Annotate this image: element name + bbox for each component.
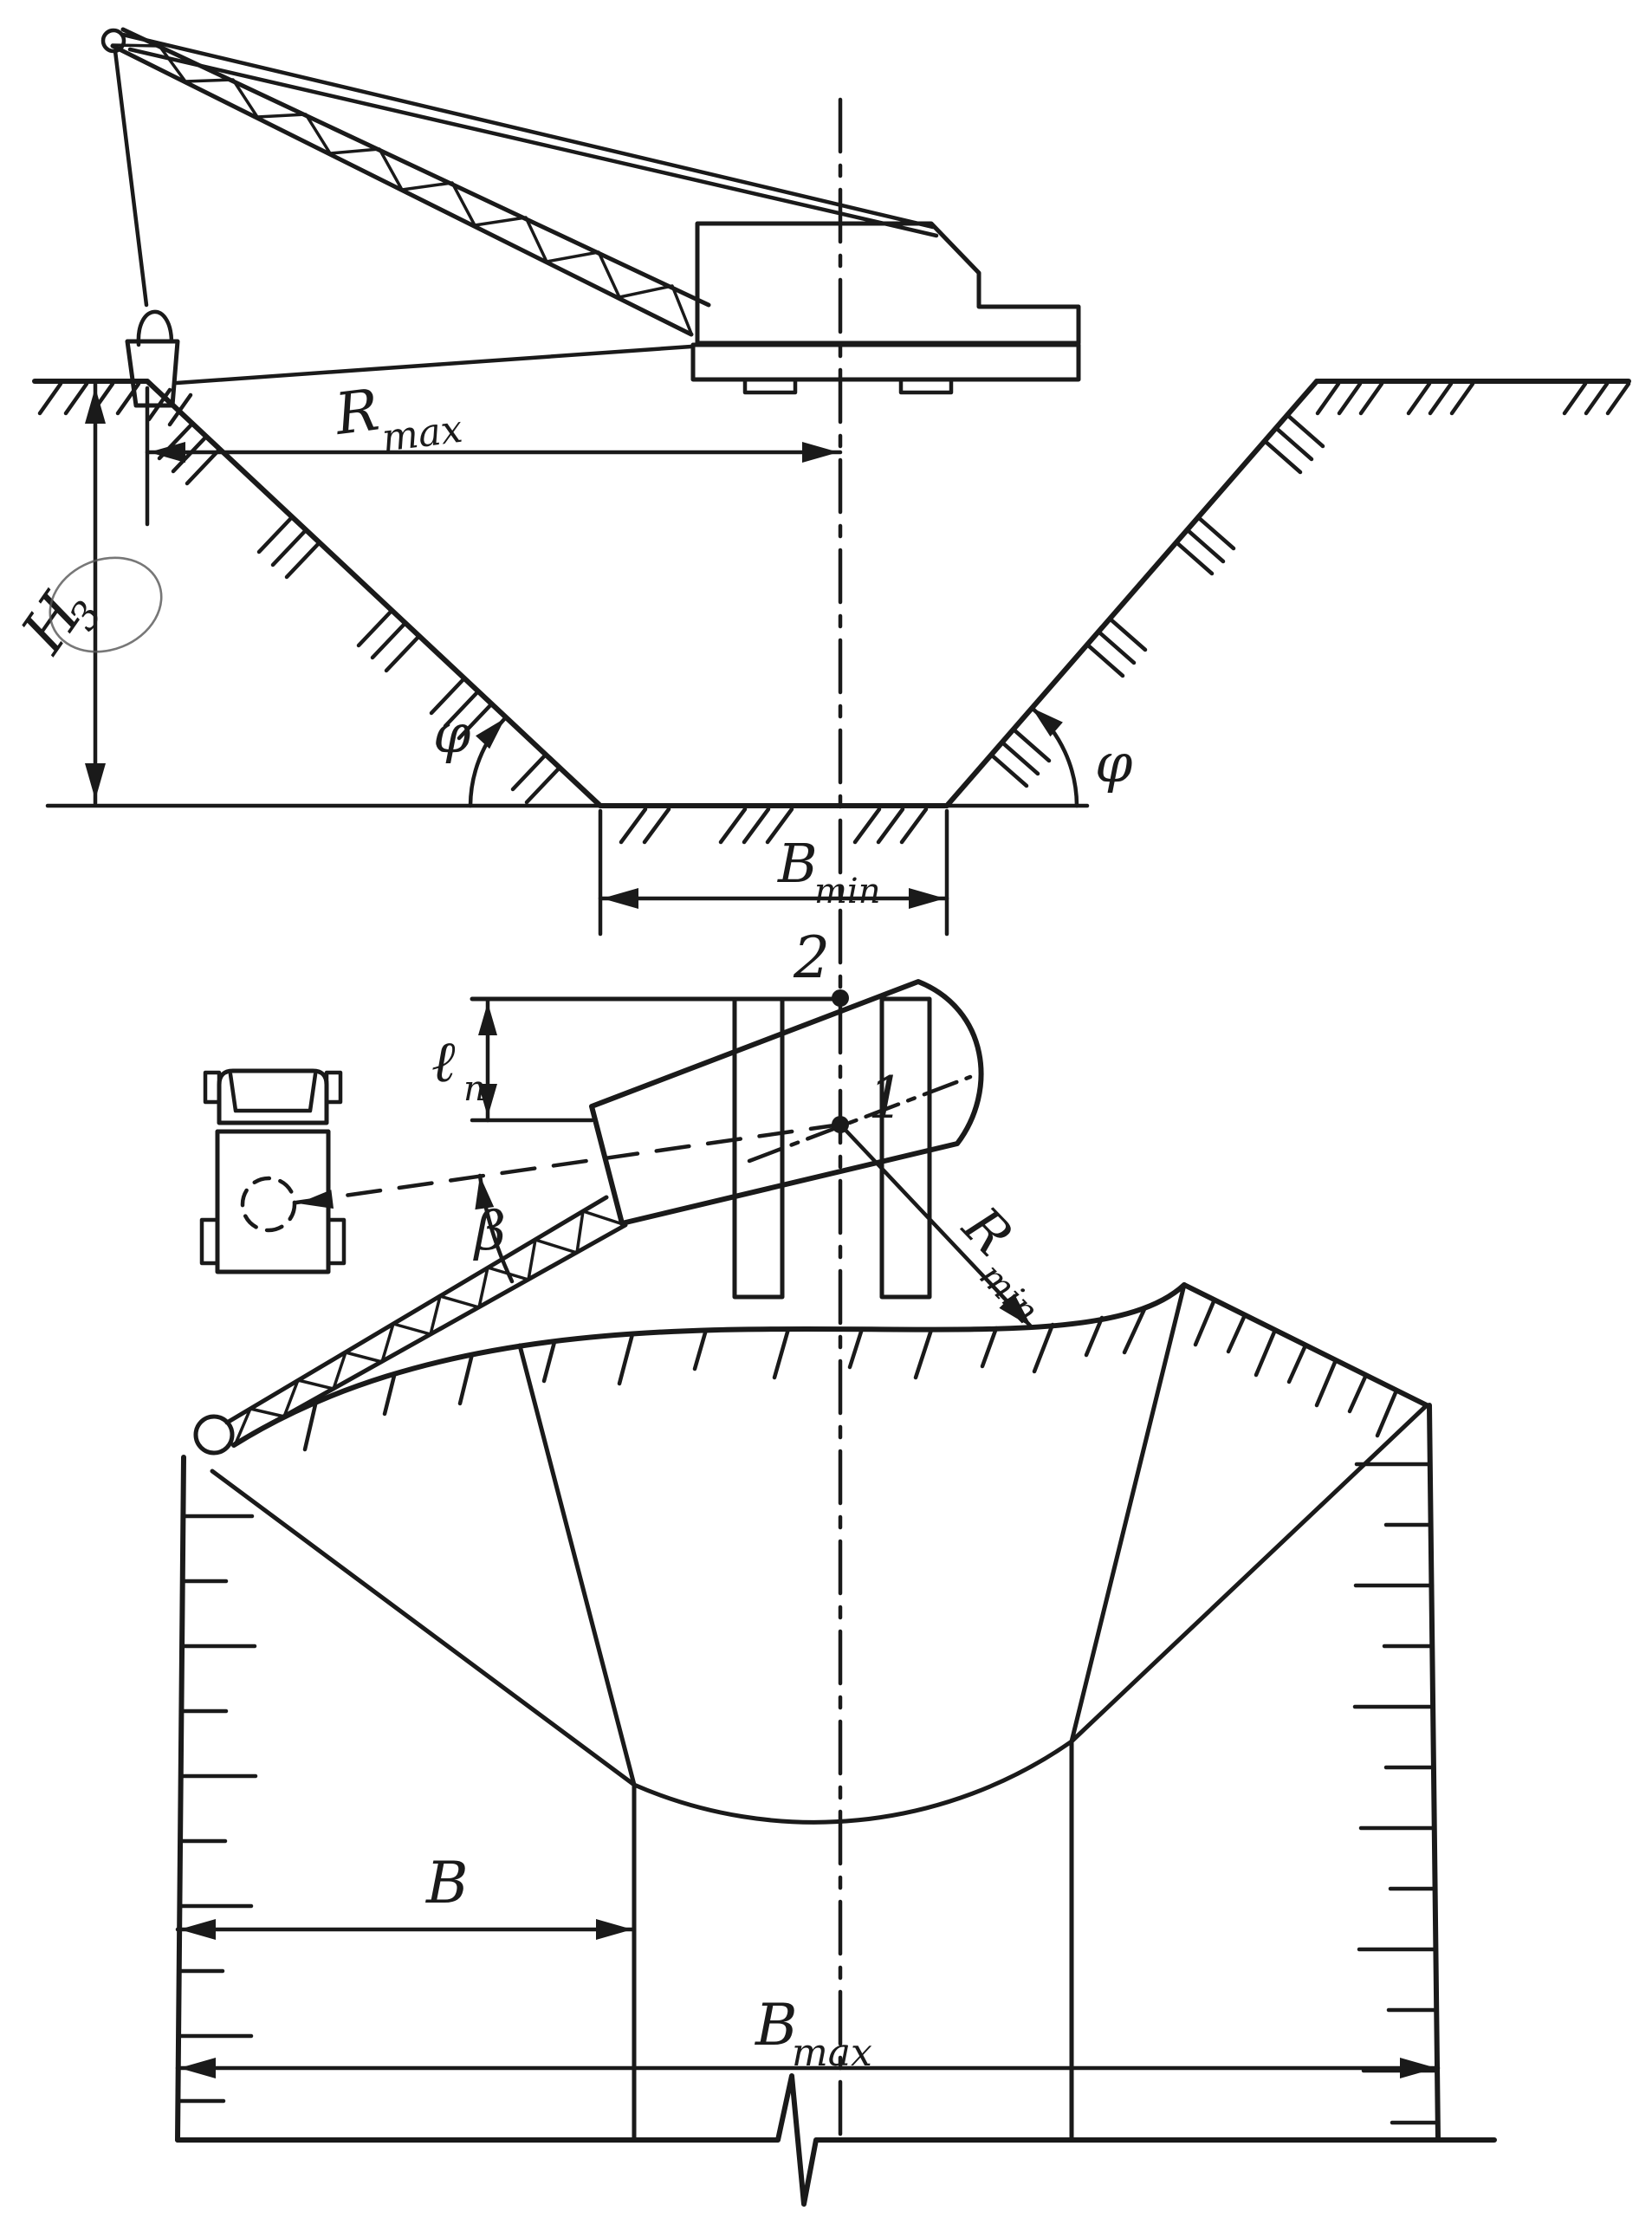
trench-bottom-hatch xyxy=(621,809,926,842)
drag-rope xyxy=(177,347,691,383)
bmax-arrow-left xyxy=(179,2058,216,2078)
pit-edge-right xyxy=(1429,1405,1438,2140)
bmin-arrow-right xyxy=(909,888,945,909)
label-rmin-sub: min xyxy=(972,1256,1046,1332)
rmax-arrow-right xyxy=(802,442,839,463)
pendant-rope-2 xyxy=(130,49,936,236)
dim-b: B xyxy=(178,1850,634,1940)
label-point-1: 1 xyxy=(868,1065,904,1131)
dim-r-min: R min xyxy=(840,1125,1075,1334)
bmax-arrow-right xyxy=(1400,2058,1436,2078)
track-pad-right xyxy=(901,379,951,392)
boom-chord-upper xyxy=(123,29,709,305)
label-bmin-sub: min xyxy=(814,872,880,911)
label-b: B xyxy=(425,1850,469,1916)
dragline-bucket xyxy=(127,341,178,405)
pit-edge-left-hatch xyxy=(178,1516,256,2101)
diagram-canvas: H 3 R max B min xyxy=(0,0,1652,2224)
crane-side-view xyxy=(103,29,1079,405)
ln-arrow-up xyxy=(478,1002,497,1035)
truck-wheel-right xyxy=(328,1220,344,1263)
ground-hatch-right xyxy=(1318,384,1629,413)
dump-target-circle xyxy=(243,1178,295,1230)
plan-view: 2 1 ℓ n β R min xyxy=(178,924,1494,2204)
pit-edge-right-hatch xyxy=(1355,1464,1437,2123)
fan-line-right-outer xyxy=(1072,1405,1427,1741)
side-view: H 3 R max B min xyxy=(7,29,1629,934)
b-arrow-right xyxy=(596,1919,632,1940)
drawing-sheet: H 3 R max B min xyxy=(0,0,1652,2224)
bmin-arrow-left xyxy=(602,888,638,909)
label-ln-base: ℓ xyxy=(431,1028,456,1095)
fan-line-left-inner xyxy=(520,1345,634,1785)
fan-line-left-outer xyxy=(212,1471,634,1785)
truck-windshield xyxy=(230,1074,315,1111)
dim-b-max: B max xyxy=(178,1992,1438,2078)
label-rmax-base: R xyxy=(331,376,383,448)
machine-house xyxy=(697,224,1079,343)
right-slope-hatch xyxy=(991,415,1323,786)
hoist-rope xyxy=(115,51,146,305)
plan-track-right xyxy=(882,999,930,1297)
rmax-arrow-left xyxy=(149,442,185,463)
plan-bucket-circle xyxy=(196,1417,232,1453)
angle-phi-left: φ xyxy=(433,702,512,806)
label-ln-sub: n xyxy=(463,1069,486,1109)
b-arrow-left xyxy=(179,1919,216,1940)
trench-toe-arc xyxy=(634,1741,1072,1822)
crest-right-hatch xyxy=(1195,1300,1396,1436)
track-pad-left xyxy=(745,379,795,392)
dump-truck-plan xyxy=(202,1071,344,1272)
dim-step-ln: ℓ n xyxy=(431,999,592,1120)
axis-point-2 xyxy=(832,989,849,1007)
dim-r-max: R max xyxy=(147,366,840,524)
label-point-2: 2 xyxy=(793,924,830,991)
pendant-rope-1 xyxy=(123,35,933,227)
label-rmin-base: R xyxy=(950,1194,1025,1268)
plan-boom-chord-1 xyxy=(227,1197,606,1423)
label-bmin-base: B xyxy=(777,832,818,895)
crawler-track xyxy=(693,345,1079,379)
label-phi-right: φ xyxy=(1095,731,1133,794)
left-slope-hatch xyxy=(159,424,560,802)
label-beta: β xyxy=(473,1199,506,1262)
excavator-plan: 2 1 xyxy=(196,924,981,1453)
baseline-with-break xyxy=(178,2076,1494,2204)
plan-body xyxy=(592,982,981,1223)
trench-left-slope xyxy=(147,381,600,806)
label-bmax-sub: max xyxy=(792,2031,872,2075)
dim-depth-h3: H 3 xyxy=(7,384,176,803)
h3-arrow-down xyxy=(85,763,106,800)
truck-wheel-left xyxy=(202,1220,217,1263)
h3-arrow-up xyxy=(85,387,106,424)
label-phi-left: φ xyxy=(433,702,471,765)
